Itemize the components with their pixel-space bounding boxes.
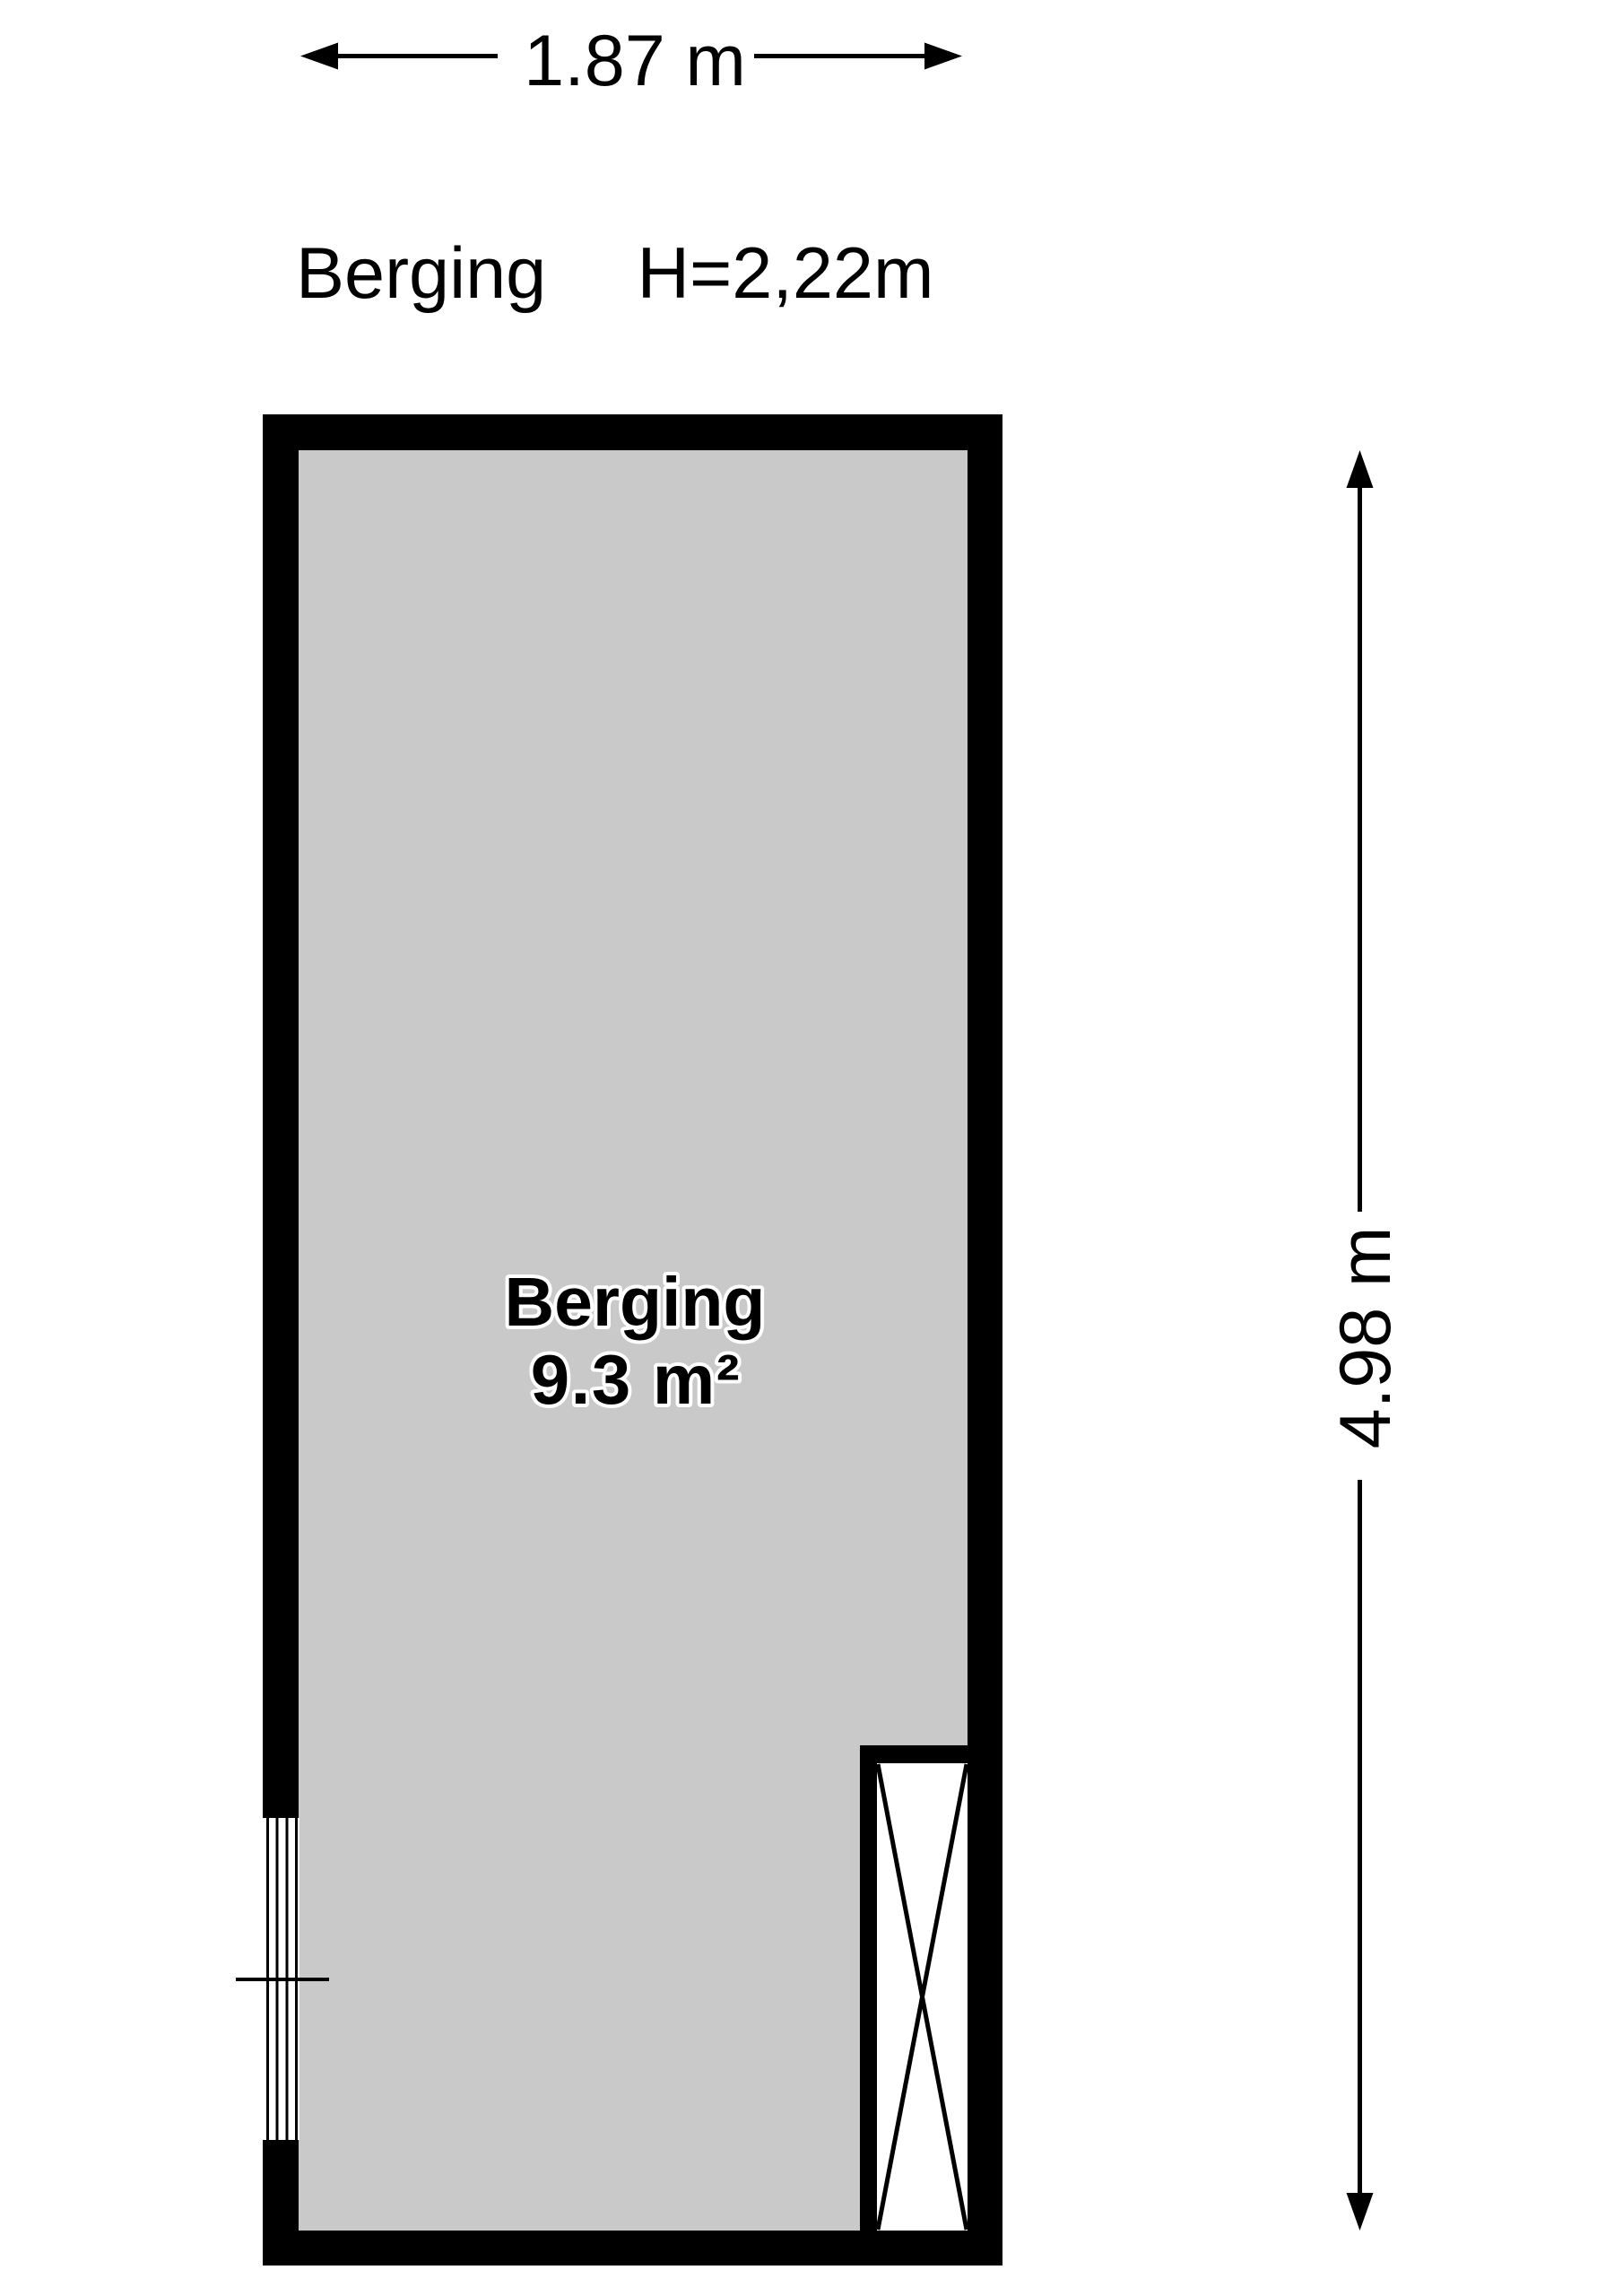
svg-text:Berging: Berging (505, 1264, 766, 1341)
svg-text:H=2,22m: H=2,22m (638, 233, 934, 314)
svg-text:Berging: Berging (296, 233, 546, 314)
svg-text:4.98 m: 4.98 m (1325, 1227, 1406, 1449)
svg-text:1.87 m: 1.87 m (524, 21, 746, 101)
svg-text:9.3 m²: 9.3 m² (531, 1340, 741, 1419)
